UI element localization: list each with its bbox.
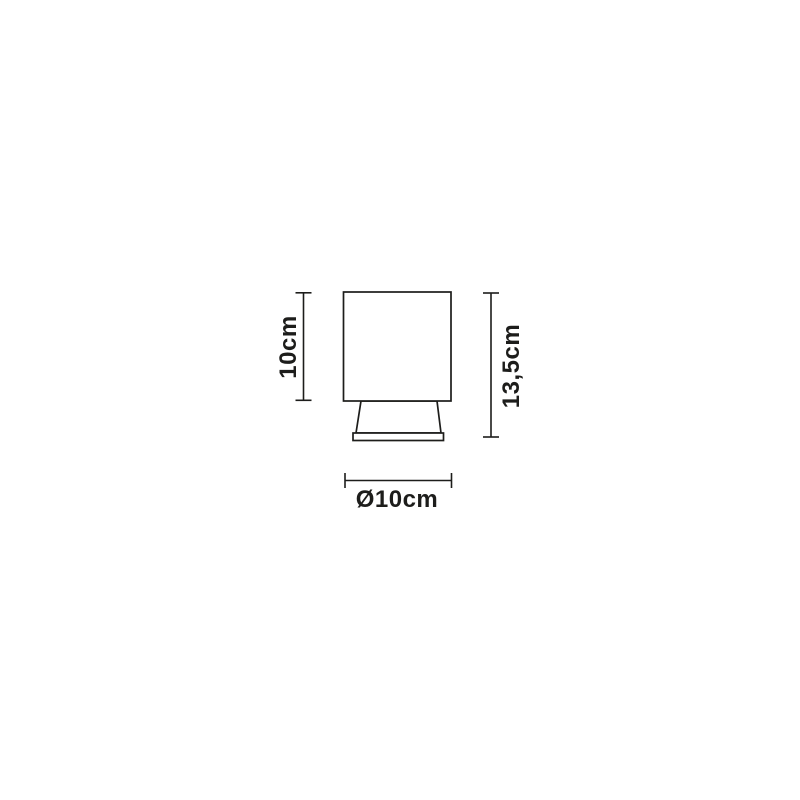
- lamp-technical-drawing: [0, 0, 800, 800]
- lamp-base-outline: [356, 401, 441, 433]
- total-height-dimension-line: [483, 293, 499, 437]
- dimension-diagram: 10cm 13,5cm Ø10cm: [0, 0, 800, 800]
- lamp-shade-outline: [344, 292, 452, 401]
- shade-height-label: 10cm: [275, 315, 303, 378]
- diameter-label: Ø10cm: [356, 486, 439, 514]
- lamp-outline: [344, 292, 452, 441]
- total-height-label: 13,5cm: [498, 324, 526, 408]
- lamp-baseplate-outline: [353, 433, 444, 441]
